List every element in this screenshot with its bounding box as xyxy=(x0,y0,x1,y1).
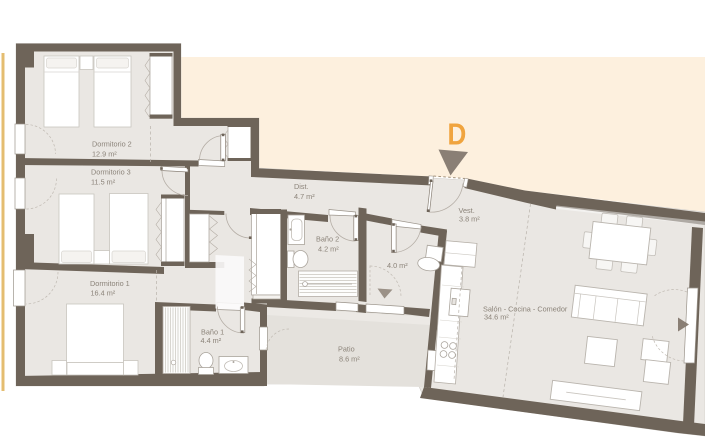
svg-text:Patio: Patio xyxy=(338,345,355,354)
svg-text:4.0 m²: 4.0 m² xyxy=(387,261,408,270)
svg-text:4.4 m²: 4.4 m² xyxy=(201,336,222,345)
svg-text:Dormitorio 3: Dormitorio 3 xyxy=(91,168,131,177)
svg-text:Baño 2: Baño 2 xyxy=(316,235,339,244)
svg-text:34.6 m²: 34.6 m² xyxy=(484,313,509,322)
svg-text:D: D xyxy=(448,117,467,152)
svg-text:4.2 m²: 4.2 m² xyxy=(318,245,339,254)
svg-text:8.6 m²: 8.6 m² xyxy=(339,355,360,364)
svg-text:Dormitorio 2: Dormitorio 2 xyxy=(92,140,132,149)
svg-text:12.9 m²: 12.9 m² xyxy=(92,150,117,159)
svg-text:Dist.: Dist. xyxy=(294,182,309,191)
svg-text:3.8 m²: 3.8 m² xyxy=(459,215,480,224)
svg-text:Dormitorio 1: Dormitorio 1 xyxy=(90,279,130,288)
svg-text:16.4 m²: 16.4 m² xyxy=(91,289,116,298)
svg-text:4.7 m²: 4.7 m² xyxy=(294,192,315,201)
svg-text:11.5 m²: 11.5 m² xyxy=(91,178,116,187)
